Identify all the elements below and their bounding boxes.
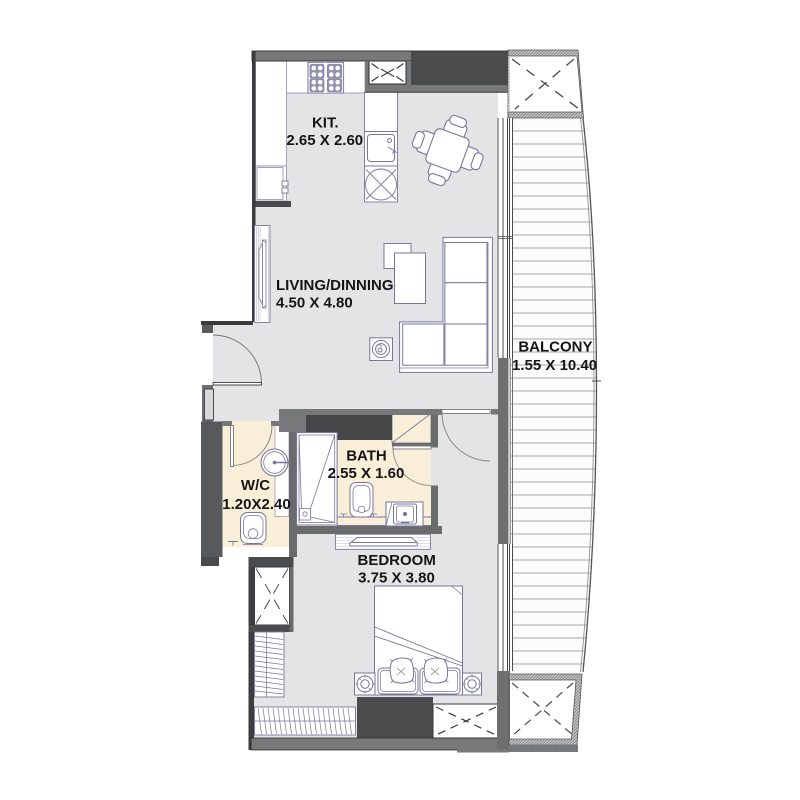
svg-text:BALCONY: BALCONY [518,339,592,356]
svg-text:3.75 X 3.80: 3.75 X 3.80 [358,570,435,587]
svg-text:BEDROOM: BEDROOM [358,552,436,569]
svg-text:KIT.: KIT. [312,115,339,132]
svg-text:W/C: W/C [241,477,270,494]
svg-text:2.55 X 1.60: 2.55 X 1.60 [328,465,405,482]
svg-text:2.65 X 2.60: 2.65 X 2.60 [286,132,363,149]
svg-text:1.20X2.40: 1.20X2.40 [222,496,290,513]
svg-text:4.50 X 4.80: 4.50 X 4.80 [276,295,353,312]
svg-text:BATH: BATH [346,448,387,465]
svg-text:1.55 X 10.40: 1.55 X 10.40 [512,357,597,374]
svg-text:LIVING/DINNING: LIVING/DINNING [276,277,394,294]
